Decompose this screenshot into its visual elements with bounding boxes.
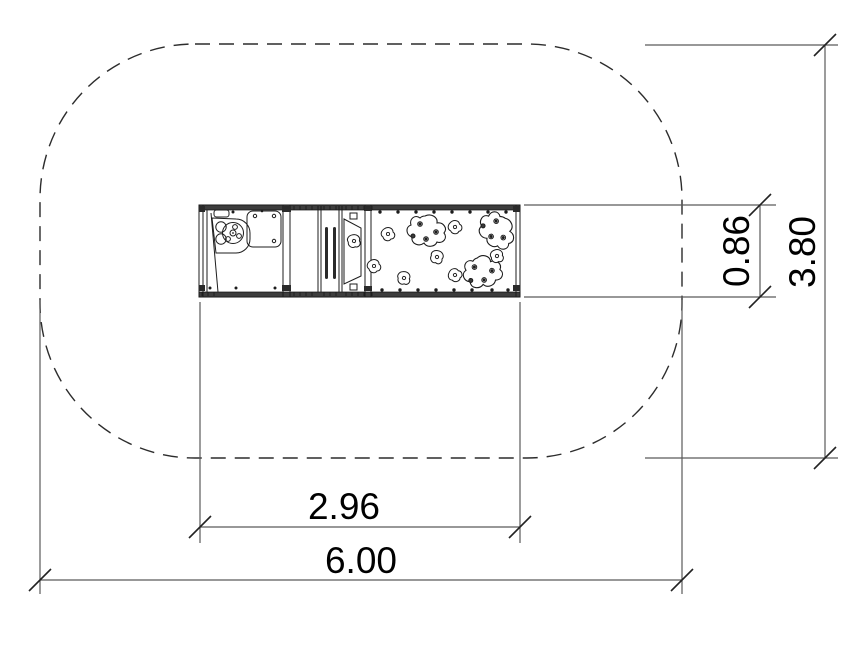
panel-bolts — [253, 214, 275, 242]
dim-total-width-label: 6.00 — [325, 540, 397, 581]
slide-tab-top — [350, 213, 357, 219]
plan-view-drawing: 2.96 6.00 0.86 3.80 — [0, 0, 858, 649]
dimension-lines — [29, 34, 838, 594]
slide-element — [344, 213, 361, 290]
dimension-labels: 2.96 6.00 0.86 3.80 — [308, 215, 823, 581]
climbing-hold-small — [345, 233, 362, 250]
climbing-hold-small — [381, 228, 395, 241]
climbing-hold-small — [447, 219, 463, 234]
parallel-bars — [325, 227, 336, 279]
climbing-hold-small — [395, 269, 413, 287]
slide-body — [344, 219, 361, 284]
climbing-hold-large — [407, 215, 445, 246]
dim-total-depth-label: 3.80 — [782, 216, 823, 288]
dim-equipment-depth-label: 0.86 — [716, 215, 757, 287]
climbing-hold-small — [446, 266, 464, 284]
frame-bottom-rail — [199, 292, 520, 297]
equipment-plan — [199, 205, 521, 297]
climbing-hold-small — [427, 248, 446, 267]
support-post — [364, 205, 372, 297]
climbing-hold-large — [472, 206, 522, 255]
technical-drawing-page: 2.96 6.00 0.86 3.80 — [0, 0, 858, 649]
climbing-holds — [345, 206, 521, 292]
steering-wheel-panel-bay — [207, 210, 281, 292]
slide-tab-bottom — [350, 284, 357, 290]
wheel-hole — [233, 225, 238, 230]
dim-equipment-width-label: 2.96 — [308, 486, 380, 527]
wheel-hole — [237, 234, 242, 239]
climbing-hold-small — [367, 260, 381, 273]
frame-top-rail — [199, 205, 520, 210]
handle-bar — [214, 210, 229, 217]
support-post — [282, 205, 291, 297]
rail-bolts-left — [209, 210, 277, 290]
